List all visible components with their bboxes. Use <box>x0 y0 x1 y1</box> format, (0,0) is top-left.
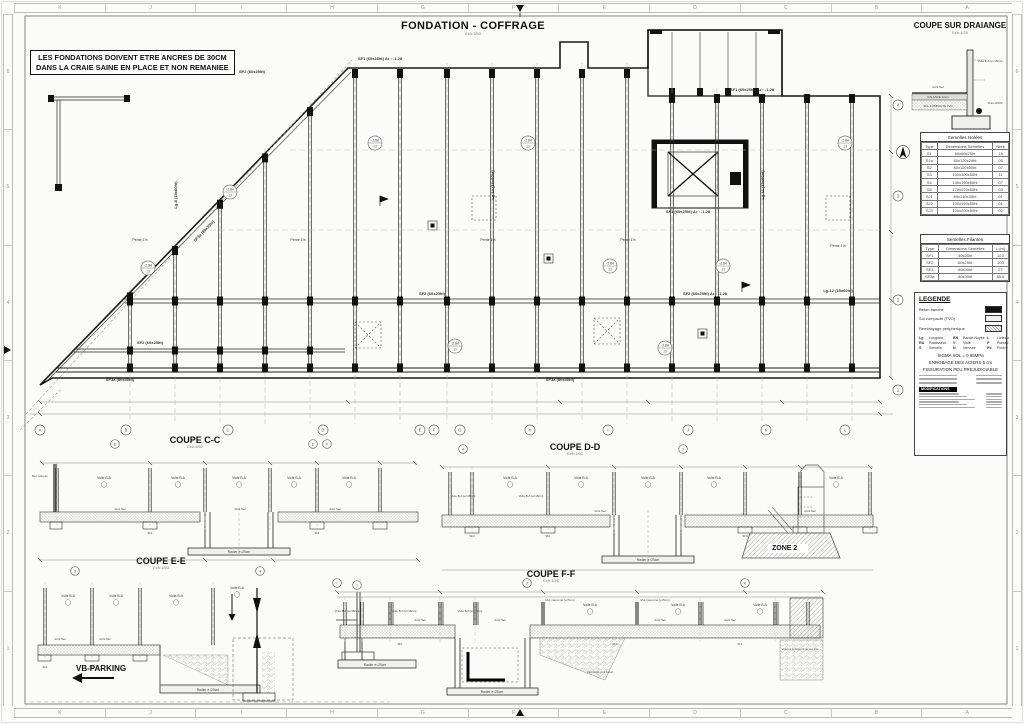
section-label: SF1 <box>737 642 743 646</box>
level-marker-value: -2.84 <box>606 262 614 266</box>
section-label: Mur maçonné (e=5cm) <box>545 598 574 602</box>
level-marker-value: -2.84 <box>524 139 532 143</box>
footing-pad <box>352 297 358 306</box>
table-row: SF3a80x30ht85.5 <box>922 273 1009 280</box>
ruler-cell: C <box>740 4 831 12</box>
ruler-cell: 1 <box>4 591 12 706</box>
abbr-key: N <box>953 346 961 350</box>
section-cc <box>38 461 420 562</box>
table-semelles-filantes: Semelles Filantes TypeDimensions Semelle… <box>920 234 1010 282</box>
ruler-cell-label: F <box>512 710 515 716</box>
voile-mark <box>65 600 71 606</box>
footing-pad <box>444 69 450 78</box>
section-label: Radier e=25cm <box>481 690 504 694</box>
voile-mark <box>645 482 651 488</box>
grid-bubble-label: H <box>529 427 532 432</box>
legend-abbreviations: LgLongrineBNBande NoyéeLLinteauRARaidiss… <box>919 336 1002 350</box>
table-cell: 100x200x50ht <box>937 207 993 214</box>
revision-row <box>919 399 1002 400</box>
voile-label: Voile B.A <box>583 603 597 607</box>
abbr-key: L <box>987 336 995 340</box>
footing-pad <box>262 364 268 373</box>
ruler-cell-label: 1 <box>1016 646 1019 652</box>
spec-row <box>919 382 1002 384</box>
section-label: Radier e=25cm <box>197 688 220 692</box>
coupe-ff-scale: Ech:1/25 <box>511 578 591 583</box>
ruler-cell: 6 <box>4 14 12 129</box>
footing-pad <box>849 364 855 373</box>
level-marker-value: -2.84 <box>144 264 152 268</box>
footing-pad <box>262 297 268 306</box>
grid-bubble-label: I <box>607 427 608 432</box>
ruler-cell-label: K <box>58 710 61 716</box>
abbr-key: Lg <box>919 336 927 340</box>
section-label: Joint Sec <box>724 618 736 622</box>
plan-label: SF2 (60x25ht) <box>137 340 164 345</box>
footing-pad <box>579 69 585 78</box>
footing-pad <box>534 69 540 78</box>
table-cell: 170x170x50ht <box>937 186 993 193</box>
section-label: Voile B.A (e=18cm) <box>392 609 417 613</box>
table-cell: 01 <box>993 193 1009 200</box>
footing-pad <box>579 297 585 306</box>
blueprint-linework: ABCDEFGHIJKL4321DEF43341IJK-2.8413-2.841… <box>0 0 1024 724</box>
footing-pad <box>307 364 313 373</box>
ruler-cell: G <box>377 4 468 12</box>
table-cell: 02 <box>993 207 1009 214</box>
voile-label: Voile B.A <box>230 586 244 590</box>
abbr-word: Raidisseur <box>929 341 951 345</box>
revision-row <box>919 393 1002 394</box>
level-marker-value: -2.84 <box>226 188 234 192</box>
footing-pad <box>849 297 855 306</box>
table-cell: 05 <box>993 157 1009 164</box>
ruler-cell: H <box>286 4 377 12</box>
footing-pad <box>397 69 403 78</box>
footing-pad <box>534 364 540 373</box>
grid-bubble-label: E <box>419 427 422 432</box>
footing-pad <box>849 94 855 103</box>
voile-label: Voile B.A <box>342 476 356 480</box>
voile-mark <box>113 600 119 606</box>
section-label: Joint Sec <box>99 637 111 641</box>
ruler-cell: D <box>649 4 740 12</box>
footing-pad <box>307 297 313 306</box>
footing-pad <box>127 364 133 373</box>
voile-mark <box>587 609 593 615</box>
foundation-note: LES FONDATIONS DOIVENT ETRE ANCRES DE 30… <box>30 50 235 75</box>
table-row: S1a80x120x25ht05 <box>922 157 1009 164</box>
section-ff <box>335 590 825 695</box>
ruler-cell: J <box>105 709 196 717</box>
ruler-cell-label: I <box>241 710 242 716</box>
table-cell: 80x120x25ht <box>937 157 993 164</box>
ruler-cell: I <box>195 709 286 717</box>
border-ruler-left: 654321 <box>3 14 13 706</box>
section-label: Radier e=25cm <box>637 558 660 562</box>
ruler-cell-label: C <box>784 710 788 716</box>
voile-label: Voile B.A <box>641 476 655 480</box>
plan-label: SF1 (60x25ht) Ar : -1.28 <box>730 87 775 92</box>
footing-pad <box>579 364 585 373</box>
abbr-key: S <box>919 346 927 350</box>
level-marker-sub: 13 <box>526 145 530 149</box>
ruler-cell: 4 <box>4 245 12 360</box>
table-cell: 140x190x50ht <box>937 178 993 185</box>
table-title: Semelles Isolées <box>921 133 1009 142</box>
table-cell: SJ1 <box>922 193 938 200</box>
border-ruler-right: 654321 <box>1012 14 1022 706</box>
footing-pad <box>759 297 765 306</box>
ruler-cell: 5 <box>1013 129 1021 244</box>
table-cell: 40x25ht <box>938 252 992 259</box>
voile-mark <box>173 600 179 606</box>
section-label: SF1 <box>314 531 320 535</box>
table-cell: SF2 <box>922 259 939 266</box>
table-cell: S4 <box>922 178 938 185</box>
level-marker-sub: 13 <box>228 194 232 198</box>
footing-pad <box>172 246 178 255</box>
footing-pad <box>397 297 403 306</box>
table-cell: 100x190x50ht <box>937 200 993 207</box>
footing-pad <box>624 69 630 78</box>
voile-mark <box>291 482 297 488</box>
table-semelles-isolees: Semelles Isolées TypeDimensions Semelles… <box>920 132 1010 216</box>
footing-pad <box>804 364 810 373</box>
ruler-cell-label: 3 <box>7 415 10 421</box>
table-cell: S1 <box>922 150 938 157</box>
footing-pad <box>127 347 133 355</box>
voile-label: Voile B.A <box>287 476 301 480</box>
level-marker-sub: 13 <box>843 145 847 149</box>
table-row: SF380x30ht27 <box>922 266 1009 273</box>
page-title-scale: Ech:1/50 <box>388 31 558 36</box>
ruler-cell-label: H <box>330 710 334 716</box>
abbr-key: Po <box>987 346 995 350</box>
table-cell: SJ3 <box>922 207 938 214</box>
table-cell: 80x140x35ht <box>937 193 993 200</box>
voile-mark <box>101 482 107 488</box>
section-label: Joint Sec <box>414 618 426 622</box>
ruler-cell-label: K <box>58 5 61 11</box>
ruler-cell: A <box>921 4 1012 12</box>
footing-pad <box>669 94 675 103</box>
footing-pad <box>172 364 178 373</box>
legend-box: LEGENDE Béton banché Sol compacté (TVO) … <box>914 292 1007 456</box>
ruler-cell-label: B <box>875 5 878 11</box>
table-cell: 07 <box>993 178 1009 185</box>
ruler-cell: B <box>831 709 922 717</box>
footing-pad <box>669 364 675 373</box>
footing-pad <box>714 364 720 373</box>
drainage-title: COUPE SUR DRAIANGE <box>905 21 1015 30</box>
level-marker-sub: 13 <box>373 145 377 149</box>
footing-pad <box>397 364 403 373</box>
footing-pad <box>217 297 223 306</box>
voile-mark <box>236 482 242 488</box>
footing-pad <box>307 347 313 355</box>
section-label: Voile B.A (e=18cm) <box>519 494 544 498</box>
grid-bubble-label: A <box>39 427 42 432</box>
ruler-cell-label: B <box>875 710 878 716</box>
drawing-sheet: ABCDEFGHIJKL4321DEF43341IJK-2.8413-2.841… <box>0 0 1024 724</box>
section-label: Joint Sec <box>234 507 246 511</box>
voile-mark <box>346 482 352 488</box>
abbr-word: Poutre <box>997 346 1019 350</box>
section-label: Voile B.A (e=18cm) <box>451 494 476 498</box>
plan-label: Pente 1% <box>480 238 496 242</box>
grid-bubble-label: I <box>337 581 338 585</box>
section-label: Voile B.A (e=18cm) <box>335 609 360 613</box>
border-ruler-top: KJIHGFEDCBA <box>14 3 1012 13</box>
section-label: Voile B.A (e=18cm) <box>978 59 1003 63</box>
level-marker-value: -2.84 <box>841 139 849 143</box>
table-title: Semelles Filantes <box>921 235 1009 244</box>
plan-label: Lg-10 (15x60ht) <box>490 170 495 200</box>
section-label: Voile B.A (e=18cm) <box>458 609 483 613</box>
plan-label: SF3a (80x30ht) <box>192 219 216 243</box>
table-cell: 80x120x50ht <box>937 164 993 171</box>
grid-bubble-label: 4 <box>259 569 261 573</box>
section-label: Joint Sec <box>932 85 944 89</box>
footing-pad <box>669 297 675 306</box>
ruler-cell-label: A <box>966 710 969 716</box>
drainage-title-scale: Ech:1/25 <box>905 30 1015 35</box>
ruler-cell: 5 <box>4 129 12 244</box>
voile-label: Voile B.A <box>671 603 685 607</box>
level-marker-value: -2.84 <box>451 342 459 346</box>
footing-pad <box>352 364 358 373</box>
coupe-dd-scale: Ech:1/50 <box>535 451 615 456</box>
table-cell: 60x60x25ht <box>937 150 993 157</box>
vb-parking-label: VB-PARKING <box>76 664 126 673</box>
table-cell: 11 <box>993 171 1009 178</box>
plan-label: Lg-12 (15x60ht) <box>823 288 853 293</box>
table-cell: 07 <box>993 164 1009 171</box>
table-cell: 80x30ht <box>938 273 992 280</box>
ruler-cell: 2 <box>4 475 12 590</box>
section-label: Drain Ø100 <box>988 101 1003 105</box>
border-ruler-bottom: KJIHGFEDCBA <box>14 708 1012 718</box>
grid-bubble-label: B <box>125 427 128 432</box>
north-arrow-icon <box>897 146 910 159</box>
plan-label: Lg-11 (15x60ht) <box>760 170 765 200</box>
voile-label: Voile B.A <box>61 594 75 598</box>
voile-mark <box>675 609 681 615</box>
ruler-cell: 2 <box>1013 475 1021 590</box>
table-header: Type <box>922 143 938 150</box>
voile-mark <box>578 482 584 488</box>
level-marker-sub: 13 <box>721 268 725 272</box>
voile-mark <box>833 482 839 488</box>
section-label: Joint Sec <box>54 637 66 641</box>
ruler-cell: E <box>558 4 649 12</box>
plan-label: Pente 1% <box>290 238 306 242</box>
footing-pad <box>759 94 765 103</box>
ruler-cell: K <box>14 709 105 717</box>
grid-bubble-label: K <box>765 427 768 432</box>
table-cell: 01 <box>993 200 1009 207</box>
legend-swatch-light-label: Sol compacté (TVO) <box>919 316 955 321</box>
table-cell: SJ2 <box>922 200 938 207</box>
sol-compacte-swatch <box>985 315 1002 322</box>
ruler-cell-label: 5 <box>7 184 10 190</box>
plan-label: Lg-8 (15x60ht) <box>173 181 178 209</box>
ruler-cell-label: J <box>149 710 152 716</box>
level-marker-sub: 13 <box>663 350 667 354</box>
ruler-cell: G <box>377 709 468 717</box>
ruler-cell: 3 <box>4 360 12 475</box>
footing-pad <box>804 297 810 306</box>
abbr-key: P <box>987 341 995 345</box>
abbr-word: Nervure <box>963 346 985 350</box>
ruler-cell-label: A <box>966 5 969 11</box>
voile-mark <box>711 482 717 488</box>
section-label: Joint Sec <box>114 507 126 511</box>
footing-pad <box>624 364 630 373</box>
section-label: SF1 <box>42 665 48 669</box>
abbr-word: Longrine <box>929 336 951 340</box>
section-label: SF2 <box>469 534 475 538</box>
level-marker-sub: 13 <box>608 268 612 272</box>
table-row: S160x60x25ht18 <box>922 150 1009 157</box>
table-row: SJ3100x200x50ht02 <box>922 207 1009 214</box>
ruler-cell-label: J <box>149 5 152 11</box>
abbr-word: Linteau <box>997 336 1019 340</box>
ruler-cell: H <box>286 709 377 717</box>
table-row: SF140x25ht123 <box>922 252 1009 259</box>
revision-row <box>919 396 1002 397</box>
plan-label: SF1 (60x25ht) Ar : -1.28 <box>358 56 403 61</box>
table-row: SF260x25ht103 <box>922 259 1009 266</box>
footing-pad <box>217 364 223 373</box>
section-label: SF1 <box>397 642 403 646</box>
plan-label: SF3a (80x30ht) <box>106 377 135 382</box>
table-cell: 03 <box>993 186 1009 193</box>
footing-pad <box>534 297 540 306</box>
table-row: S5170x170x50ht03 <box>922 186 1009 193</box>
footing-pad <box>624 297 630 306</box>
section-label: Joint Sec <box>654 618 666 622</box>
section-label: SF1 <box>147 531 153 535</box>
ruler-cell: B <box>831 4 922 12</box>
voile-mark <box>757 609 763 615</box>
grid-bubble-label: 1 <box>356 583 358 587</box>
table-header: Nbre <box>993 143 1009 150</box>
plan-label: SF3a (80x30ht) <box>546 377 575 382</box>
level-marker-value: -2.84 <box>371 139 379 143</box>
grid-bubble-label: 4 <box>462 447 464 451</box>
ruler-cell-label: D <box>693 710 697 716</box>
section-ee <box>30 588 390 702</box>
level-marker-value: -2.84 <box>661 344 669 348</box>
ruler-cell-label: 6 <box>1016 69 1019 75</box>
table-row: SJ2100x190x50ht01 <box>922 200 1009 207</box>
ruler-cell-label: 2 <box>7 530 10 536</box>
grid-bubble-label: D <box>114 442 117 446</box>
modifications-bar: MODIFICATIONS <box>919 387 957 392</box>
footing-pad <box>262 347 268 355</box>
table-cell: S5 <box>922 186 938 193</box>
footing-pad <box>444 364 450 373</box>
voile-label: Voile B.A <box>97 476 111 480</box>
voile-label: Voile B.A <box>574 476 588 480</box>
section-label: Remblais gros béton <box>587 670 614 674</box>
note-line-1: LES FONDATIONS DOIVENT ETRE ANCRES DE 30… <box>36 53 229 63</box>
ruler-cell: 3 <box>1013 360 1021 475</box>
grid-bubble-label: 3 <box>74 569 76 573</box>
table-header: Dimensions Semelles <box>937 143 993 150</box>
level-marker-sub: 13 <box>453 348 457 352</box>
table-cell: SF3a <box>922 273 939 280</box>
plan-label: Pente 1% <box>132 238 148 242</box>
table-row: S280x120x50ht07 <box>922 164 1009 171</box>
concrete-spec-rows <box>919 375 1002 384</box>
spec-row <box>919 375 1002 377</box>
plan-label: Pente 1% <box>830 244 846 248</box>
plan-label: SF2 (60x25ht) <box>239 69 266 74</box>
ruler-cell-label: F <box>512 5 515 11</box>
legend-title: LEGENDE <box>919 296 1002 303</box>
coupe-cc-scale: Ech:1/50 <box>155 444 235 449</box>
grid-bubble-label: F <box>326 442 328 446</box>
ruler-cell: F <box>468 709 559 717</box>
section-label: Radier e=25cm <box>364 663 387 667</box>
voile-label: Voile B.A <box>503 476 517 480</box>
section-label: Joint Sec <box>594 509 606 513</box>
footing-pad <box>489 69 495 78</box>
table-cell: SF3 <box>922 266 939 273</box>
ruler-cell: J <box>105 4 196 12</box>
table-cell: SF1 <box>922 252 939 259</box>
ruler-cell-label: 5 <box>1016 184 1019 190</box>
grid-bubble-label: D <box>322 427 325 432</box>
table-header: L (m) <box>992 245 1008 252</box>
ruler-cell: C <box>740 709 831 717</box>
abbr-word: Semelle <box>929 346 951 350</box>
footing-pad <box>489 297 495 306</box>
grid-bubble-label: 3 <box>682 447 684 451</box>
note-line-2: DANS LA CRAIE SAINE EN PLACE ET NON REMA… <box>36 63 229 73</box>
footing-pad <box>172 347 178 355</box>
table-row: S4140x190x50ht07 <box>922 178 1009 185</box>
table-row: S3100x100x50ht11 <box>922 171 1009 178</box>
ruler-cell-label: 1 <box>7 646 10 652</box>
section-label: Volume à déterminer sur site <box>782 647 819 651</box>
section-label: SOL COMPACTE TVO <box>923 104 953 108</box>
footing-pad <box>444 297 450 306</box>
revision-row <box>919 401 1002 402</box>
section-label: SF1 <box>612 642 618 646</box>
abbr-key: RA <box>919 341 927 345</box>
ruler-cell-label: 4 <box>7 300 10 306</box>
ruler-cell: 1 <box>1013 591 1021 706</box>
ruler-cell-label: G <box>421 5 425 11</box>
table-header: Type <box>922 245 939 252</box>
footing-pad <box>804 94 810 103</box>
voile-label: Voile B.A <box>829 476 843 480</box>
voile-label: Voile B.A <box>232 476 246 480</box>
ruler-cell-label: E <box>603 5 606 11</box>
voile-label: Voile B.A <box>171 476 185 480</box>
table-cell: 80x30ht <box>938 266 992 273</box>
ruler-cell: F <box>468 4 559 12</box>
legend-note-fissuration: FISSURATION PEU PREJUDICIABLE <box>919 367 1002 372</box>
table-header: Dimensions Semelles <box>938 245 992 252</box>
table-row: SJ180x140x35ht01 <box>922 193 1009 200</box>
voile-label: Voile B.A <box>753 603 767 607</box>
plan-label: SF2 (60x25ht) Ar : -1.28 <box>683 291 728 296</box>
